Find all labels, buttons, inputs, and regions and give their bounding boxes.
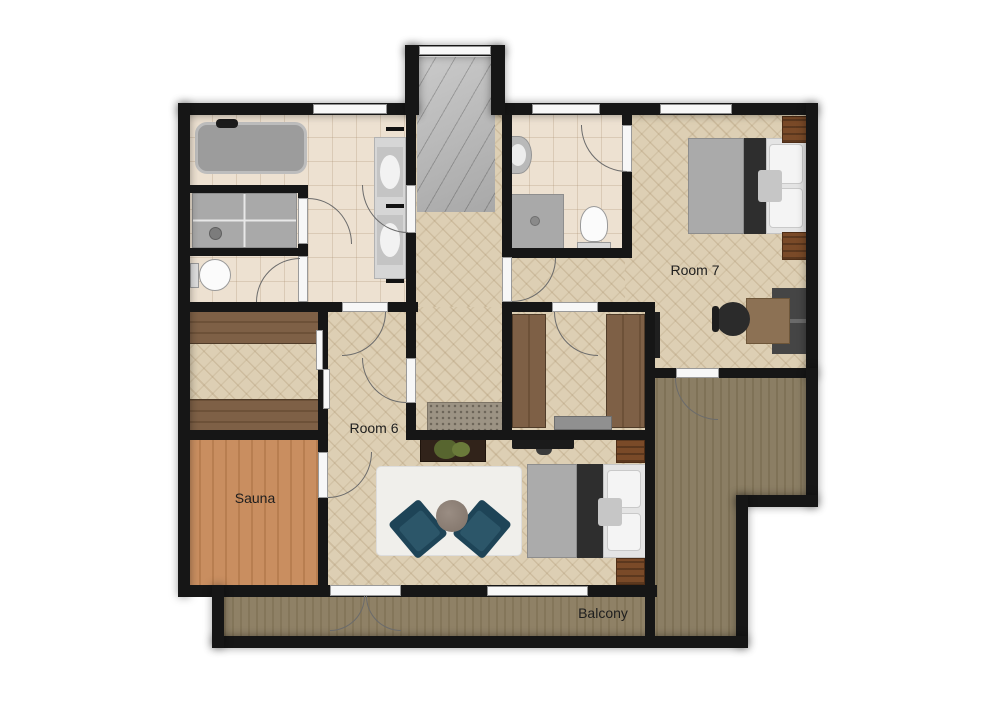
wardrobe-room-sliding-door-a [316,330,323,370]
wall [178,103,190,597]
balcony-label: Balcony [578,605,628,621]
wall [491,45,505,115]
wall [212,585,224,648]
wall [502,312,512,438]
closet-door [552,302,598,312]
coffee-table [436,500,468,532]
shower-room-door [298,198,308,244]
nightstand-7b [782,232,808,260]
wall [736,495,748,648]
bed6-blanket [527,464,577,558]
sauna-door [318,452,328,498]
wardrobe-band-bottom [188,399,320,433]
wardrobe-room-sliding-door-b [323,369,330,409]
sink-bowl [510,144,526,166]
sink-1 [380,155,400,189]
towel-rail-3 [386,279,404,283]
office-chair-back [712,306,719,332]
wall [185,248,308,256]
bathtub-faucet [216,119,238,128]
floorplan-canvas: Room 7 Room 6 Sauna Balcony [0,0,1000,707]
bathroom1-window [313,104,387,114]
room7-window [660,104,732,114]
bathroom2-window [532,104,600,114]
closet-bench [554,416,612,430]
hall-mat [427,402,503,432]
bed7-blanket [688,138,744,234]
wardrobe-band-top [188,310,320,344]
sauna-label: Sauna [235,490,275,506]
wall [806,368,818,507]
balcony-french-door [330,585,401,596]
wall [416,430,655,440]
wall [502,248,632,258]
wall [502,115,512,258]
nightstand-6a [616,436,645,463]
staircase [417,57,495,212]
terrace-floor-lower [650,500,741,641]
bathtub [195,122,307,174]
towel-rail-1 [386,127,404,131]
room6-hall-door [406,358,416,403]
toilet [199,259,231,291]
wall [405,45,419,115]
room6-window [487,586,588,596]
shower-head [209,227,222,240]
sauna-floor [188,435,323,590]
nightstand-6b [616,558,645,585]
wall [185,430,328,440]
office-chair [716,302,750,336]
wall [645,302,655,648]
wall [806,103,818,378]
wall [212,636,748,648]
shower-drain [530,216,540,226]
toilet-cistern [190,263,199,288]
plant-leaf [452,442,470,457]
desk [746,298,790,344]
shower-enclosure [192,193,297,248]
wall [185,185,308,193]
nightstand-7a [782,116,808,143]
room6-upper-door [342,302,388,312]
terrace-floor-upper [650,373,811,500]
room7-entry-door [502,257,512,302]
bed7-throw [758,170,782,202]
stair-window [419,46,491,55]
wardrobe-right [606,314,645,428]
room7-label: Room 7 [670,262,719,278]
wall [645,368,818,378]
wall [736,495,818,507]
room6-label: Room 6 [349,420,398,436]
wardrobe-left [512,314,546,428]
bed6-throw [598,498,622,526]
toilet-2 [580,206,608,242]
terrace-door [676,368,719,378]
